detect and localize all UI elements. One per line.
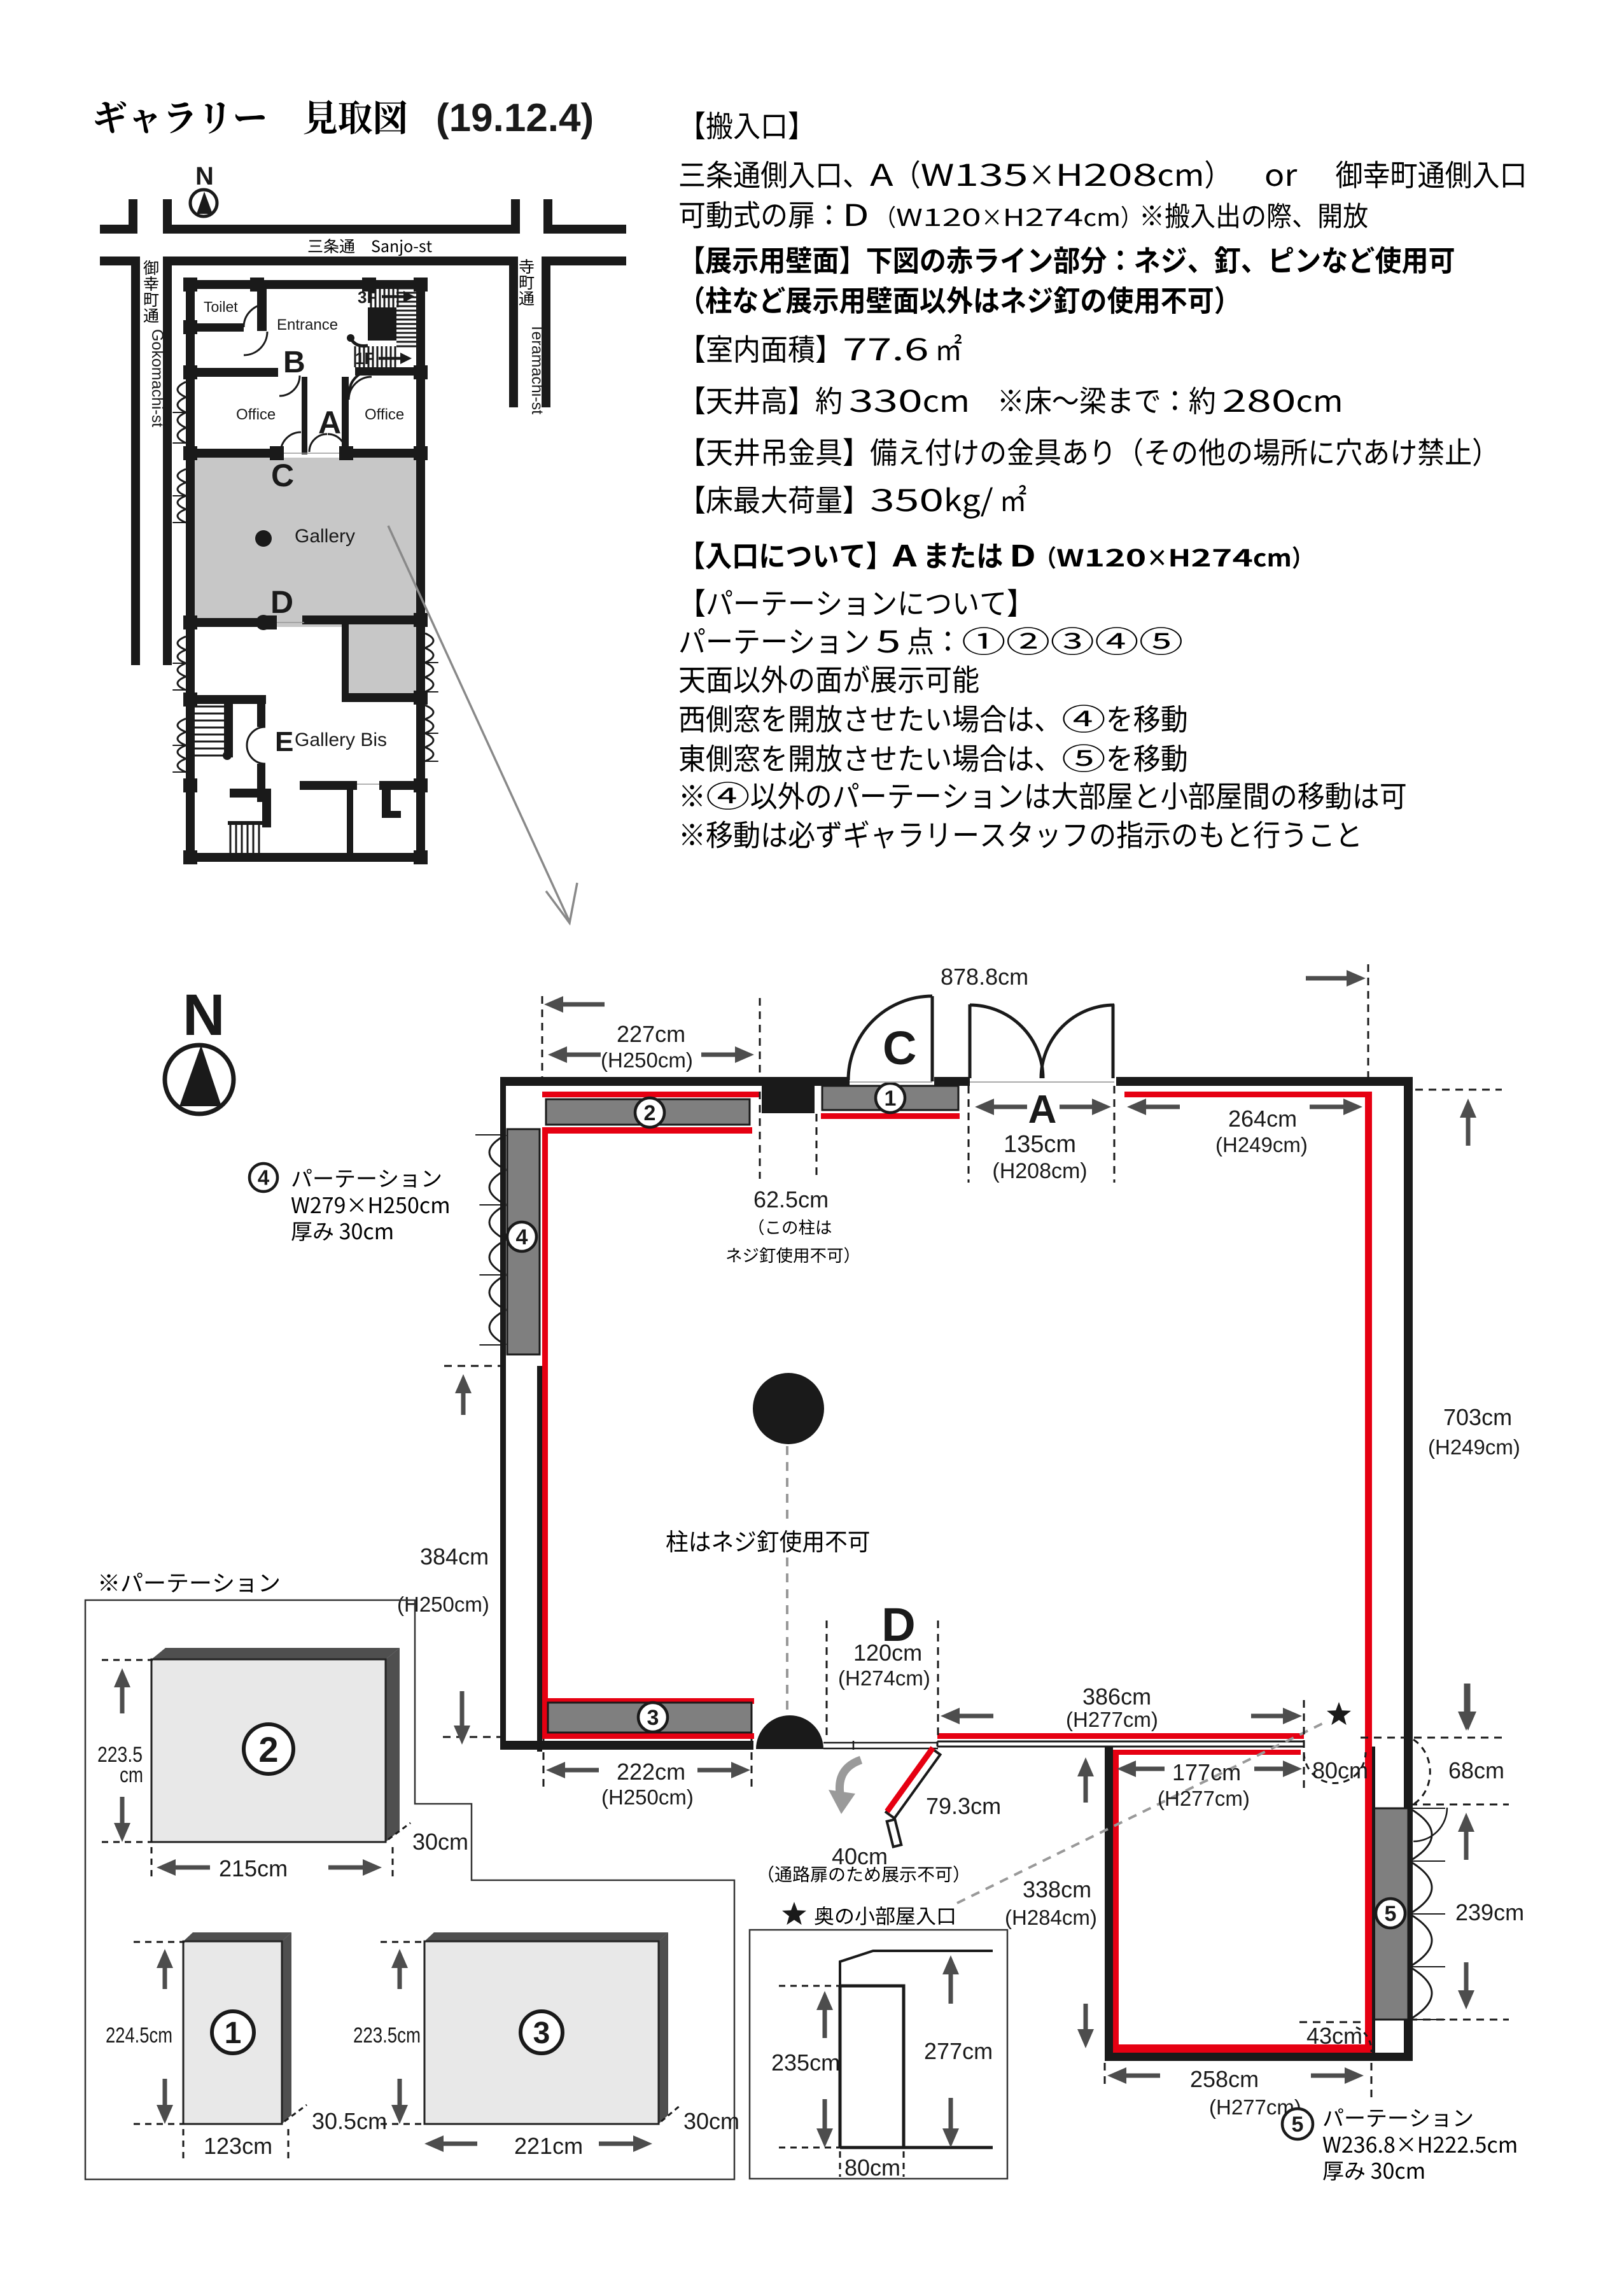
svg-text:(H250cm): (H250cm) <box>601 1785 694 1809</box>
svg-text:222cm: 222cm <box>617 1759 685 1785</box>
svg-text:703cm: 703cm <box>1443 1404 1512 1430</box>
svg-text:80cm: 80cm <box>1312 1757 1368 1783</box>
svg-text:(H250cm): (H250cm) <box>397 1592 489 1616</box>
svg-text:(H274cm): (H274cm) <box>838 1666 930 1690</box>
svg-text:1: 1 <box>885 1086 897 1111</box>
svg-text:224.5cm: 224.5cm <box>106 2023 172 2048</box>
svg-text:80cm: 80cm <box>844 2155 900 2181</box>
svg-text:D: D <box>270 584 293 620</box>
svg-text:43cm: 43cm <box>1306 2023 1362 2049</box>
svg-text:5: 5 <box>1385 1902 1397 1926</box>
svg-text:215cm: 215cm <box>219 1855 288 1881</box>
svg-text:30.5cm: 30.5cm <box>312 2108 387 2134</box>
svg-text:62.5cm: 62.5cm <box>753 1186 829 1213</box>
svg-text:(H277cm): (H277cm) <box>1158 1787 1250 1810</box>
svg-text:(H250cm): (H250cm) <box>601 1048 693 1072</box>
svg-text:2: 2 <box>258 1729 278 1769</box>
svg-text:135cm: 135cm <box>1004 1131 1076 1158</box>
svg-text:(19.12.4): (19.12.4) <box>436 96 594 140</box>
svg-text:Teramachi-st: Teramachi-st <box>528 323 546 414</box>
svg-text:N: N <box>183 983 225 1048</box>
svg-text:3: 3 <box>647 1706 659 1730</box>
svg-text:2: 2 <box>644 1101 656 1125</box>
svg-text:E: E <box>275 726 293 757</box>
svg-text:264cm: 264cm <box>1228 1106 1297 1132</box>
svg-text:1F: 1F <box>355 349 374 368</box>
svg-text:(H249cm): (H249cm) <box>1428 1435 1520 1459</box>
svg-text:221cm: 221cm <box>514 2133 583 2159</box>
svg-text:79.3cm: 79.3cm <box>926 1793 1001 1819</box>
svg-text:258cm: 258cm <box>1190 2066 1259 2092</box>
svg-text:386cm: 386cm <box>1082 1684 1151 1710</box>
svg-text:N: N <box>195 162 214 190</box>
svg-text:C: C <box>883 1022 916 1074</box>
svg-text:5: 5 <box>1292 2113 1304 2137</box>
svg-text:Gallery Bis: Gallery Bis <box>295 729 387 750</box>
svg-text:(H284cm): (H284cm) <box>1005 1906 1097 1929</box>
svg-text:235cm: 235cm <box>771 2049 840 2076</box>
svg-text:30cm: 30cm <box>412 1829 468 1855</box>
svg-text:1: 1 <box>225 2016 242 2050</box>
svg-text:338cm: 338cm <box>1023 1876 1091 1902</box>
svg-text:(H208cm): (H208cm) <box>992 1159 1087 1183</box>
svg-text:C: C <box>271 458 294 493</box>
svg-text:384cm: 384cm <box>420 1543 489 1570</box>
svg-text:Office: Office <box>365 406 404 423</box>
svg-text:239cm: 239cm <box>1455 1899 1524 1925</box>
svg-text:878.8cm: 878.8cm <box>941 964 1028 990</box>
svg-text:68cm: 68cm <box>1448 1757 1504 1783</box>
svg-text:30cm: 30cm <box>683 2108 739 2134</box>
svg-text:277cm: 277cm <box>924 2038 993 2064</box>
svg-text:(H249cm): (H249cm) <box>1215 1133 1308 1157</box>
svg-text:227cm: 227cm <box>617 1021 685 1047</box>
svg-text:4: 4 <box>258 1166 270 1190</box>
svg-text:223.5cm: 223.5cm <box>353 2023 421 2048</box>
svg-text:177cm: 177cm <box>1172 1759 1241 1785</box>
svg-text:A: A <box>318 405 341 440</box>
svg-text:123cm: 123cm <box>204 2133 272 2159</box>
svg-text:(H277cm): (H277cm) <box>1066 1708 1158 1731</box>
svg-text:40cm: 40cm <box>832 1843 888 1869</box>
svg-text:Toilet: Toilet <box>204 299 238 315</box>
svg-text:A: A <box>1028 1088 1057 1132</box>
svg-text:3: 3 <box>533 2016 550 2050</box>
svg-text:B: B <box>283 346 305 379</box>
svg-text:Gokomachi-st: Gokomachi-st <box>148 329 166 427</box>
svg-text:Entrance: Entrance <box>277 316 338 334</box>
svg-text:120cm: 120cm <box>853 1640 922 1666</box>
svg-text:Office: Office <box>236 406 276 423</box>
svg-text:4: 4 <box>516 1225 528 1249</box>
svg-text:Gallery: Gallery <box>295 526 355 547</box>
svg-text:cm: cm <box>120 1763 143 1787</box>
